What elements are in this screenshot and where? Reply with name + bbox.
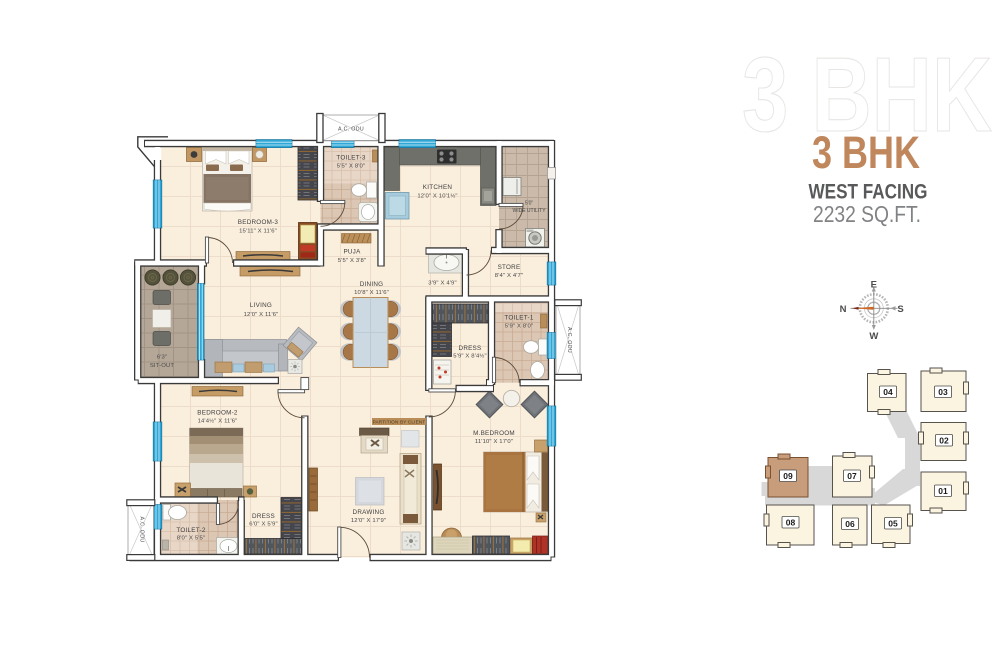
svg-text:5'9" X 8'0": 5'9" X 8'0" [505,324,533,330]
svg-text:TOILET-2: TOILET-2 [176,527,205,534]
svg-text:2232 SQ.FT.: 2232 SQ.FT. [813,201,921,227]
svg-text:PARTITION BY CLIENT: PARTITION BY CLIENT [373,420,426,425]
svg-text:KITCHEN: KITCHEN [423,184,453,191]
svg-text:15'11" X 11'6": 15'11" X 11'6" [239,229,277,235]
svg-text:STORE: STORE [498,264,521,271]
svg-text:06: 06 [845,519,855,529]
svg-text:12'0" X 10'1½": 12'0" X 10'1½" [417,193,457,200]
svg-text:04: 04 [883,387,893,397]
svg-text:LIVING: LIVING [250,302,272,309]
svg-text:A.C. ODU: A.C. ODU [139,517,145,543]
svg-text:E: E [871,280,877,291]
svg-text:W: W [869,331,878,342]
svg-text:BEDROOM-3: BEDROOM-3 [238,219,279,226]
svg-text:TOILET-3: TOILET-3 [336,155,365,162]
svg-text:6'0" X 5'9": 6'0" X 5'9" [249,522,277,528]
svg-text:08: 08 [786,518,796,528]
svg-text:01: 01 [938,486,948,496]
svg-text:8'4" X 4'7": 8'4" X 4'7" [495,273,523,279]
svg-text:A.C. ODU: A.C. ODU [566,327,572,353]
svg-text:M.BEDROOM: M.BEDROOM [473,430,515,437]
svg-text:07: 07 [847,471,857,481]
svg-text:DRESS: DRESS [459,345,482,352]
svg-text:14'4½" X 11'6": 14'4½" X 11'6" [198,418,238,425]
svg-text:SIT-OUT: SIT-OUT [150,363,175,369]
svg-text:S: S [897,304,903,315]
svg-text:5'0": 5'0" [525,201,534,207]
svg-text:WIDE UTILITY: WIDE UTILITY [512,208,546,214]
svg-text:3'9" X 4'9": 3'9" X 4'9" [428,281,456,287]
svg-text:12'0" X 11'6": 12'0" X 11'6" [244,312,279,318]
svg-text:5'5" X 8'0": 5'5" X 8'0" [337,164,365,170]
svg-text:03: 03 [938,387,948,397]
svg-text:TOILET-1: TOILET-1 [504,315,533,322]
svg-text:DINING: DINING [360,281,384,288]
svg-text:8'0" X 5'5": 8'0" X 5'5" [177,536,205,542]
svg-text:5'9" X 8'4½": 5'9" X 8'4½" [453,353,486,360]
svg-text:05: 05 [888,519,898,529]
svg-text:DRAWING: DRAWING [353,509,385,516]
svg-text:12'0" X 17'9": 12'0" X 17'9" [351,518,386,524]
svg-text:A.C. ODU: A.C. ODU [338,127,364,133]
svg-text:DRESS: DRESS [252,513,275,520]
svg-text:09: 09 [783,471,793,481]
svg-text:10'8" X 11'6": 10'8" X 11'6" [354,290,389,296]
svg-text:PUJA: PUJA [343,249,361,256]
svg-text:11'10" X 17'0": 11'10" X 17'0" [475,439,513,445]
svg-text:BEDROOM-2: BEDROOM-2 [197,410,238,417]
svg-text:02: 02 [939,436,949,446]
svg-text:6'3": 6'3" [157,355,167,361]
svg-text:N: N [840,304,847,315]
svg-text:5'5" X 3'8": 5'5" X 3'8" [338,258,366,264]
svg-text:3 BHK: 3 BHK [812,127,920,178]
svg-text:WEST FACING: WEST FACING [809,180,928,204]
